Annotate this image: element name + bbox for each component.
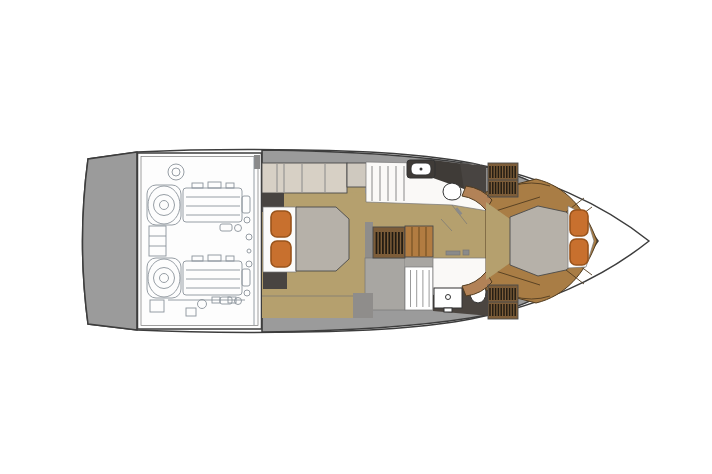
aft-berth-mattress bbox=[296, 207, 349, 271]
v-berth-pillow-icon bbox=[570, 239, 588, 265]
stair-wall-foot bbox=[353, 293, 373, 318]
door-track-hardware bbox=[446, 251, 460, 255]
v-berth-pillow-icon bbox=[570, 210, 588, 236]
cabinet-row bbox=[262, 163, 347, 193]
aft-berth-pillow-icon bbox=[271, 241, 291, 267]
sink-pedestal bbox=[444, 308, 452, 312]
stair-landing-strip bbox=[405, 257, 433, 268]
wardrobe-top bbox=[488, 163, 518, 197]
yacht-floor-plan bbox=[0, 0, 712, 474]
wardrobe-bottom bbox=[488, 285, 518, 319]
hatch-stripes bbox=[377, 232, 403, 254]
nightstand-dark bbox=[263, 272, 287, 289]
sink-icon bbox=[434, 288, 462, 308]
door-latch-hardware bbox=[463, 250, 469, 255]
side-steps bbox=[405, 226, 433, 257]
toilet-icon bbox=[443, 183, 461, 200]
engine-room-floor bbox=[138, 153, 262, 329]
swim-platform bbox=[83, 152, 138, 330]
aft-berth-pillow-icon bbox=[271, 211, 291, 237]
lower-stairs bbox=[405, 267, 433, 310]
companionway-hatch bbox=[373, 227, 405, 258]
engine-room bbox=[138, 153, 262, 329]
floor-plan-canvas bbox=[0, 0, 712, 474]
cabinet-end bbox=[347, 163, 368, 187]
engine-room-door-post bbox=[254, 155, 260, 169]
sink-drain bbox=[420, 168, 423, 171]
